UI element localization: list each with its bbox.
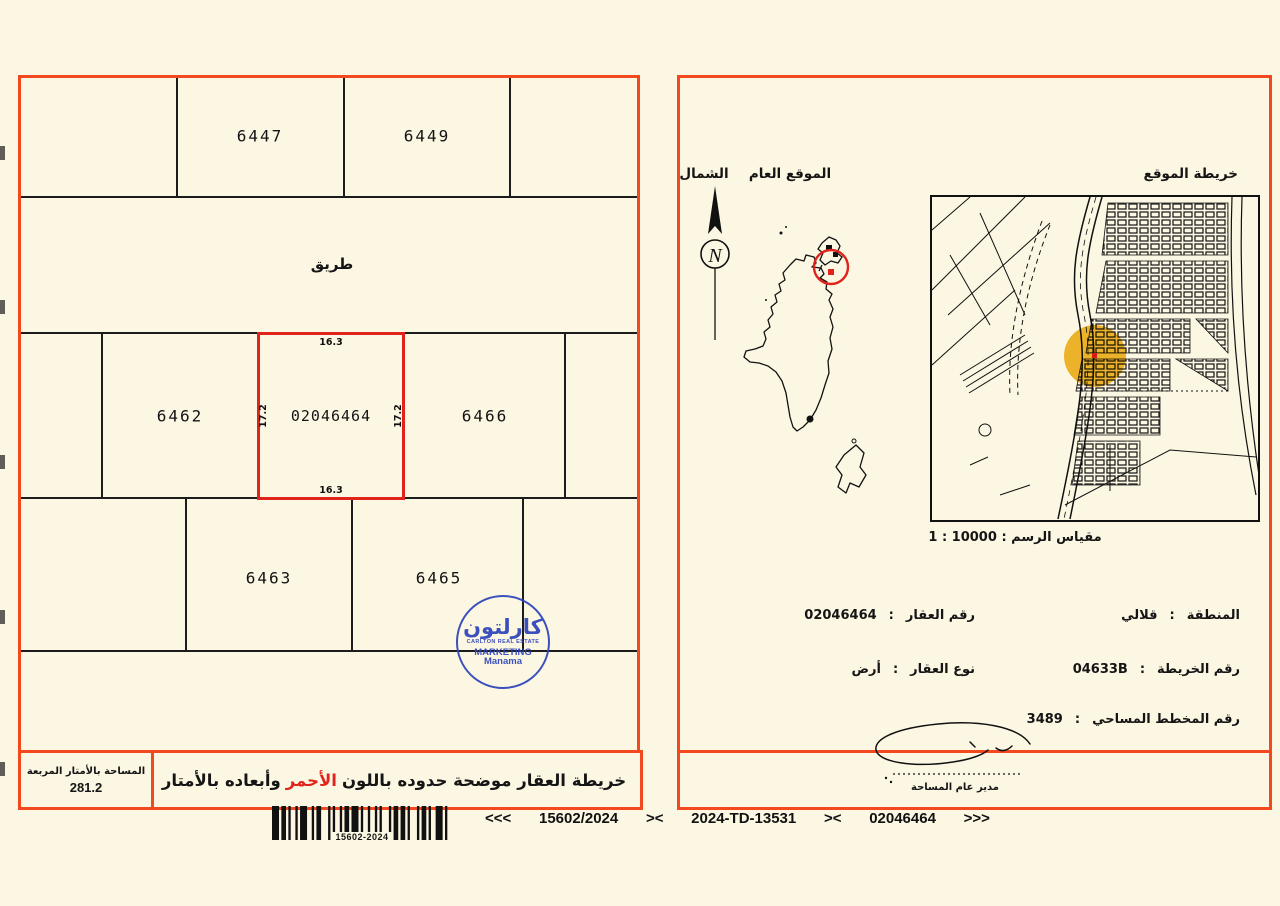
scan-artifact xyxy=(0,300,5,314)
detail-value: أرض xyxy=(852,662,881,677)
bahrain-overview-map xyxy=(726,205,896,515)
scale-value: 10000 xyxy=(952,530,997,545)
ref-separator: >< xyxy=(824,810,842,827)
ref-separator: >< xyxy=(646,810,664,827)
detail-label: رقم العقار xyxy=(906,608,975,623)
stamp-company-line: CARLTON REAL ESTATE xyxy=(467,640,540,646)
detail-value: قلالي xyxy=(1121,608,1157,623)
map-caption-box: خريطة العقار موضحة حدوده باللون الأحمر و… xyxy=(148,750,643,810)
caption-red-word: الأحمر xyxy=(286,771,337,790)
detail-label: رقم الخريطة xyxy=(1157,662,1240,677)
carlton-stamp: كارلتون CARLTON REAL ESTATE MARKETING Ma… xyxy=(456,595,550,689)
barcode: 15602-2024 xyxy=(272,806,452,844)
subject-parcel-boundary: 16.3 16.3 17.2 17.2 02046464 xyxy=(257,332,405,500)
general-location-label: الموقع العام xyxy=(745,166,835,182)
location-ring xyxy=(814,250,848,284)
grid-line xyxy=(101,332,103,497)
map-scale: مقياس الرسم : 10000 : 1 xyxy=(875,530,1155,545)
dimension-left: 17.2 xyxy=(258,404,269,427)
parcel-number-6465: 6465 xyxy=(416,569,463,588)
detail-label: المنطقة xyxy=(1187,608,1240,623)
parcel-number-6447: 6447 xyxy=(237,127,284,146)
scale-unit: 1 xyxy=(928,530,937,545)
detail-row-area-name: المنطقة : قلالي xyxy=(1121,608,1240,623)
scan-artifact xyxy=(0,610,5,624)
parcel-number-6462: 6462 xyxy=(157,407,204,426)
site-highlight-dot xyxy=(1092,353,1097,358)
scale-label: مقياس الرسم xyxy=(1011,530,1101,545)
barcode-number: 15602-2024 xyxy=(332,832,391,842)
scan-artifact xyxy=(0,762,5,776)
parcel-number-6449: 6449 xyxy=(404,127,451,146)
area-label: المساحة بالأمتار المربعة xyxy=(27,766,145,777)
ref-close-marks: >>> xyxy=(964,810,990,827)
colon: : xyxy=(1001,530,1006,545)
north-label: الشمال xyxy=(678,166,730,182)
ref-transaction-number: 2024-TD-13531 xyxy=(691,810,796,827)
stamp-city-line: Manama xyxy=(484,657,522,667)
signature-title: مدير عام المساحة xyxy=(880,782,1030,793)
parcel-number-6463: 6463 xyxy=(246,569,293,588)
detail-label: رقم المخطط المساحي xyxy=(1092,712,1240,727)
stamp-arabic-name: كارلتون xyxy=(463,617,543,638)
parcel-number-6466: 6466 xyxy=(462,407,509,426)
scan-artifact xyxy=(0,146,5,160)
caption-prefix: خريطة العقار موضحة حدوده باللون xyxy=(342,771,626,790)
colon: : xyxy=(1170,608,1175,623)
site-map xyxy=(930,195,1260,522)
colon: : xyxy=(889,608,894,623)
site-map-label: خريطة الموقع xyxy=(1143,166,1238,182)
area-box: المساحة بالأمتار المربعة 281.2 xyxy=(18,750,154,810)
dimension-bottom: 16.3 xyxy=(319,485,342,496)
scan-artifact xyxy=(0,455,5,469)
colon: : xyxy=(1075,712,1080,727)
dimension-right: 17.2 xyxy=(393,404,404,427)
colon: : xyxy=(1140,662,1145,677)
dimension-top: 16.3 xyxy=(319,337,342,348)
detail-row-property-number: رقم العقار : 02046464 xyxy=(804,608,975,623)
detail-row-map-number: رقم الخريطة : 04633B xyxy=(1073,662,1240,677)
ref-property-number: 02046464 xyxy=(869,810,936,827)
grid-line xyxy=(509,78,511,196)
detail-row-property-type: نوع العقار : أرض xyxy=(852,662,975,677)
location-dot xyxy=(828,269,834,275)
colon: : xyxy=(942,530,947,545)
caption-suffix: وأبعاده بالأمتار xyxy=(162,771,281,790)
subject-parcel-number: 02046464 xyxy=(291,407,371,425)
ref-open-marks: <<< xyxy=(485,810,511,827)
north-letter: N xyxy=(707,245,723,267)
grid-line xyxy=(185,497,187,650)
detail-label: نوع العقار xyxy=(910,662,975,677)
detail-row-survey-plan-number: رقم المخطط المساحي : 3489 xyxy=(1027,712,1240,727)
grid-line xyxy=(21,196,637,198)
detail-value: 02046464 xyxy=(804,608,876,623)
reference-line: <<< 15602/2024 >< 2024-TD-13531 >< 02046… xyxy=(485,810,990,827)
grid-line xyxy=(343,78,345,196)
ref-application-number: 15602/2024 xyxy=(539,810,618,827)
colon: : xyxy=(893,662,898,677)
grid-line xyxy=(176,78,178,196)
plot-map-panel: 6447 6449 طريق 6462 6466 6463 6465 16.3 … xyxy=(18,75,640,753)
road-label: طريق xyxy=(311,255,354,273)
grid-line xyxy=(351,497,353,650)
grid-line xyxy=(564,332,566,497)
detail-value: 04633B xyxy=(1073,662,1128,677)
area-value: 281.2 xyxy=(70,780,103,795)
signature xyxy=(858,718,1048,788)
